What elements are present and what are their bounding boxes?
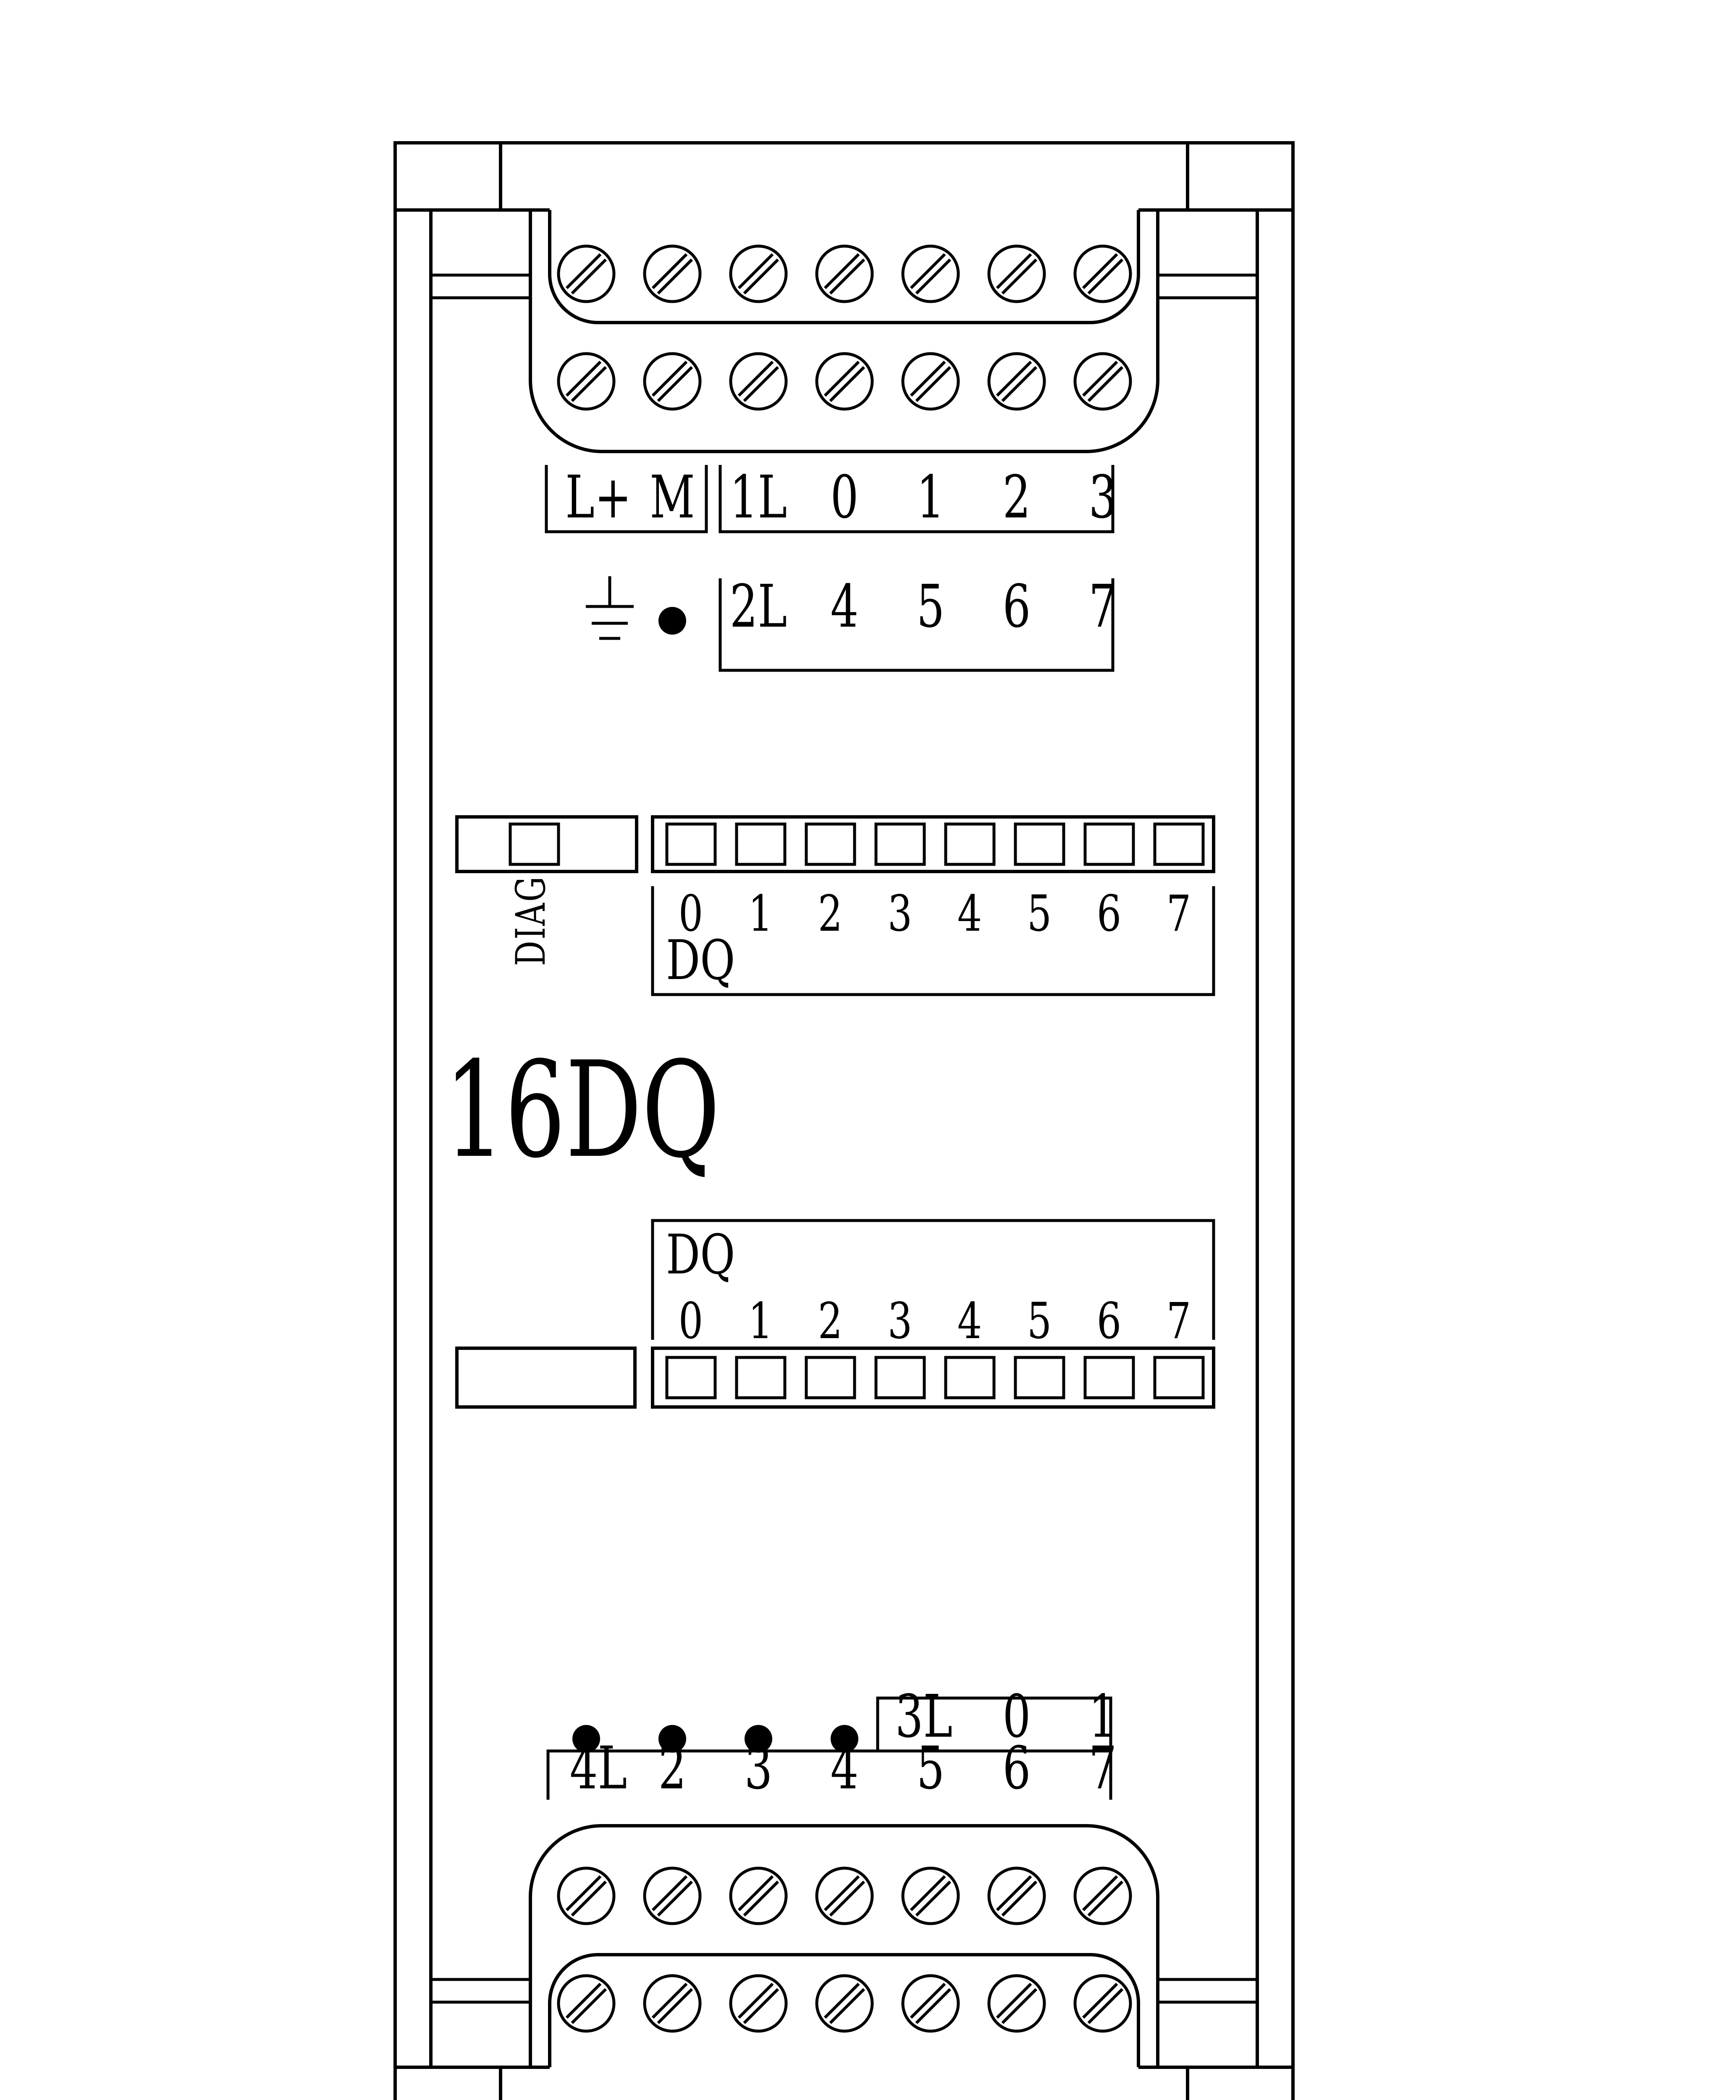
corner-notch-top-left: [395, 143, 550, 210]
screw-terminal: [1075, 1976, 1130, 2031]
corner-notch-bottom-left: [395, 2067, 550, 2100]
screw-terminal: [1075, 1868, 1130, 1924]
terminal-label-q6: 6: [1003, 1734, 1031, 1803]
led-ch3: [876, 1357, 924, 1398]
blank-led-box: [457, 1348, 635, 1407]
led-ch1: [737, 824, 785, 864]
ch-num-2: 2: [818, 885, 843, 942]
screw-terminal: [817, 1868, 872, 1924]
hinge-band-bottom-right: [1158, 1979, 1257, 2002]
screw-terminal: [989, 1976, 1044, 2031]
led-ch4: [946, 824, 994, 864]
terminal-label-q3: 3: [745, 1734, 773, 1803]
led-ch0: [667, 1357, 715, 1398]
terminal-label-2l: 2L: [730, 572, 787, 641]
channel-numbers: 0 1 2 3 4 5 6 7: [679, 885, 1191, 942]
screw-terminal: [817, 1976, 872, 2031]
led-ch1: [737, 1357, 785, 1398]
led-ch6: [1085, 1357, 1133, 1398]
screw-terminal: [731, 246, 786, 302]
screw-terminal: [989, 246, 1044, 302]
screw-row-4: [559, 1976, 1130, 2031]
ch-num-4: 4: [957, 885, 982, 942]
led-ch0: [667, 824, 715, 864]
terminal-label-4l: 4L: [570, 1734, 627, 1803]
ch-num-0: 0: [679, 1292, 703, 1350]
led-ch7: [1155, 1357, 1203, 1398]
ch-num-7: 7: [1167, 1292, 1191, 1350]
screw-row-3: [559, 1868, 1130, 1924]
screw-terminal: [559, 1976, 614, 2031]
terminal-label-q1: 1: [917, 463, 945, 532]
functional-earth-icon: [586, 576, 634, 638]
diag-label: DIAG: [508, 875, 555, 966]
terminal-label-q3: 3: [1089, 463, 1117, 532]
top-terminal-labels: L+ M 1L 0 1 2 3 2L 4 5 6 7: [546, 463, 1117, 670]
screw-terminal: [1075, 354, 1130, 409]
ch-num-5: 5: [1027, 885, 1052, 942]
terminal-label-q6: 6: [1003, 572, 1031, 641]
channel-number-box: [653, 1221, 1214, 1340]
corner-notch-bottom-right: [1138, 2067, 1293, 2100]
screw-terminal: [903, 1976, 958, 2031]
led-ch6: [1085, 824, 1133, 864]
screw-terminal: [903, 354, 958, 409]
screw-terminal: [559, 354, 614, 409]
terminal-label-q7: 7: [1089, 1734, 1117, 1803]
led-panel-lower: DQ 0 1 2 3 4 5 6 7: [457, 1221, 1214, 1407]
screw-terminal: [645, 1976, 700, 2031]
ch-num-7: 7: [1167, 885, 1191, 942]
channel-leds: [667, 824, 1203, 864]
led-ch3: [876, 824, 924, 864]
led-ch4: [946, 1357, 994, 1398]
hinge-band-bottom-left: [431, 1979, 530, 2002]
screw-terminal: [731, 354, 786, 409]
top-terminal-connector: [530, 210, 1158, 451]
led-ch2: [806, 824, 855, 864]
ch-num-2: 2: [818, 1292, 843, 1350]
ch-num-3: 3: [888, 1292, 913, 1350]
screw-terminal: [903, 246, 958, 302]
screw-terminal: [731, 1976, 786, 2031]
terminal-label-q5: 5: [917, 1734, 945, 1803]
channel-leds: [667, 1357, 1203, 1398]
bottom-terminal-labels: 3L 0 1 4L 2 3 4 5 6 7: [548, 1683, 1117, 1803]
channel-number-box: [653, 886, 1214, 995]
terminal-label-1l: 1L: [730, 463, 787, 532]
screw-terminal: [731, 1868, 786, 1924]
terminal-label-q0: 0: [831, 463, 859, 532]
terminal-label-q2: 2: [658, 1734, 687, 1803]
ch-num-6: 6: [1097, 885, 1122, 942]
terminal-label-q4: 4: [831, 572, 859, 641]
dq-label-upper: DQ: [666, 929, 735, 992]
ch-num-6: 6: [1097, 1292, 1122, 1350]
diag-led: [510, 824, 559, 864]
terminal-label-m: M: [650, 463, 695, 532]
dq-label-lower: DQ: [666, 1223, 735, 1287]
screw-terminal: [817, 354, 872, 409]
channel-numbers: 0 1 2 3 4 5 6 7: [679, 1292, 1191, 1350]
screw-terminal: [645, 246, 700, 302]
page: L+ M 1L 0 1 2 3 2L 4 5 6 7: [0, 0, 1736, 2100]
bottom-terminal-connector: [530, 1826, 1158, 2067]
screw-terminal: [903, 1868, 958, 1924]
terminal-label-q5: 5: [917, 572, 945, 641]
screw-terminal: [817, 246, 872, 302]
ch-num-3: 3: [888, 885, 913, 942]
corner-notch-top-right: [1138, 143, 1293, 210]
screw-terminal: [559, 246, 614, 302]
led-ch5: [1015, 824, 1064, 864]
screw-terminal: [989, 1868, 1044, 1924]
screw-terminal: [989, 354, 1044, 409]
ch-num-1: 1: [748, 1292, 773, 1350]
terminal-label-q4: 4: [831, 1734, 859, 1803]
ch-num-4: 4: [957, 1292, 982, 1350]
led-panel-upper: DIAG 0 1 2 3 4 5 6 7 DQ: [457, 817, 1214, 995]
ch-num-1: 1: [748, 885, 773, 942]
led-ch2: [806, 1357, 855, 1398]
terminal-label-q2: 2: [1003, 463, 1031, 532]
led-ch5: [1015, 1357, 1064, 1398]
screw-row-1: [559, 246, 1130, 302]
terminal-label-lplus: L+: [565, 463, 632, 532]
screw-terminal: [645, 354, 700, 409]
terminal-dot-icon: [658, 607, 686, 635]
hinge-band-top-right: [1158, 275, 1257, 298]
screw-terminal: [645, 1868, 700, 1924]
module-designation: 16DQ: [444, 1033, 720, 1187]
hinge-band-top-left: [431, 275, 530, 298]
top-tray-inner: [550, 210, 1138, 323]
terminal-label-q7: 7: [1089, 572, 1117, 641]
screw-terminal: [559, 1868, 614, 1924]
screw-terminal: [1075, 246, 1130, 302]
screw-row-2: [559, 354, 1130, 409]
ch-num-5: 5: [1027, 1292, 1052, 1350]
led-ch7: [1155, 824, 1203, 864]
